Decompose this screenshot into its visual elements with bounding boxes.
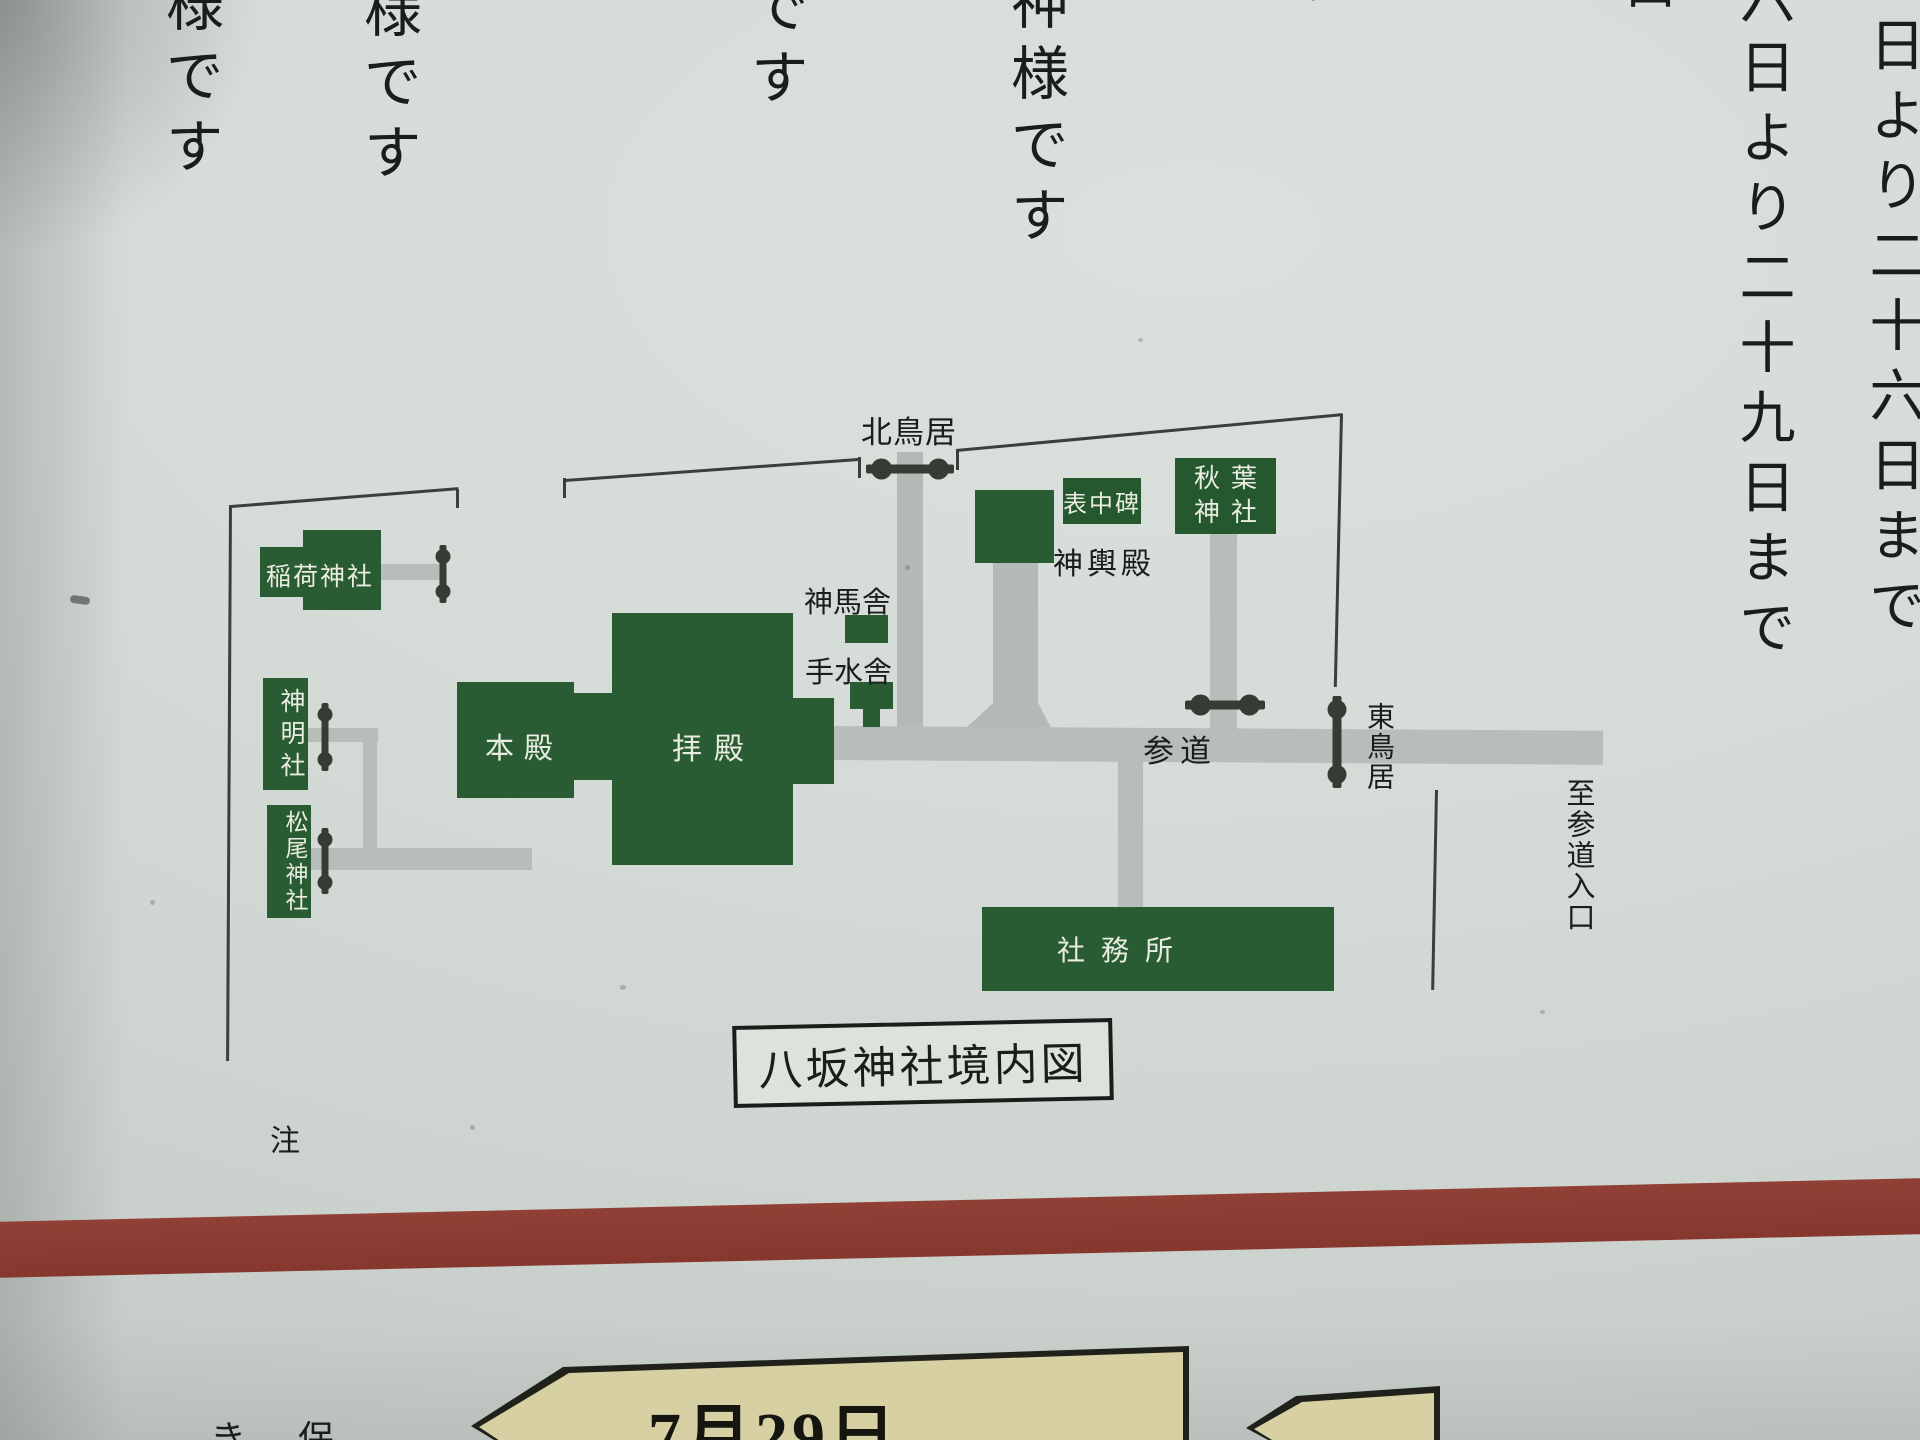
north-torii-icon [866,459,954,479]
vertical-text-column-schedule: 日より二十六日まで [1864,16,1920,646]
path-mikoshiden-flare [966,703,1051,728]
plate-akiba-shrine: 秋葉 神社 [1175,458,1276,534]
label-sando: 参道 [1143,726,1217,771]
vertical-text-column: 神様です [1005,0,1063,256]
second-ribbon-partial [1240,1386,1440,1440]
plate-hyochuhi: 表中碑 [1063,478,1141,524]
label-north-torii: 北鳥居 [861,407,957,452]
shrine-signboard-photo: 様です 様です です 神様です す 口 六日より二十九日まで 日より二十六日まで… [0,0,1920,1440]
date-banner-text: 7月29日 [648,1382,899,1440]
path-matsuo [306,848,532,870]
boundary-line-east [1334,414,1343,687]
path-sando-main [833,726,1603,765]
boundary-tick [956,449,959,470]
label-mikoshiden: 神輿殿 [1053,539,1155,583]
photo-speck [905,565,910,570]
building-haiden-wing [792,698,834,784]
vertical-text-column: 様です [358,0,416,193]
vertical-text-fragment: す [1290,0,1338,17]
building-label-haiden: 拝殿 [672,724,756,768]
building-label-matsuo: 松尾神社 [277,810,311,914]
shinmei-torii-icon [316,703,334,771]
label-chozuya: 手水舎 [805,649,892,691]
path-mikoshiden [993,540,1038,704]
boundary-line-north [565,458,860,482]
boundary-line-southeast [1431,790,1438,990]
photo-speck [470,1125,475,1130]
building-shamusho: 社務所 [982,907,1334,991]
red-divider-bar [0,1178,1920,1278]
building-chozuya-stem [863,709,880,727]
path-west-connector [363,736,377,852]
inari-torii-icon [434,545,452,603]
plate-label-hyochuhi: 表中碑 [1063,484,1141,519]
label-east-torii: 東鳥居 [1358,702,1398,792]
vertical-text-column-schedule: 六日より二十九日まで [1734,0,1790,668]
vertical-text-fragment: 口 [1618,0,1670,23]
partial-text-fragment: 保 [298,1410,334,1440]
second-ribbon-fill [1240,1386,1440,1440]
path-north-torii [897,452,923,728]
boundary-line-west [226,505,232,1061]
building-label-shinmei: 神明社 [272,688,308,784]
path-shamusho [1118,760,1143,908]
boundary-tick [456,489,459,508]
boundary-tick [563,478,566,498]
note-mark: 注 [270,1116,300,1160]
building-label-inari: 稲荷神社 [266,557,374,593]
building-mikoshiden [975,490,1054,563]
akiba-torii-icon [1185,695,1265,715]
plate-label-akiba-line1: 秋葉 [1183,462,1268,496]
photo-speck [620,985,626,990]
photo-speck [1138,338,1143,342]
building-label-honden: 本殿 [485,725,563,767]
map-title-box: 八坂神社境内図 [732,1018,1114,1108]
photo-speck [1540,1010,1545,1014]
map-title: 八坂神社境内図 [758,1028,1088,1099]
vertical-text-column: 様です [160,0,218,187]
boundary-line-northeast [956,413,1343,452]
label-shinmesha: 神馬舎 [804,579,891,621]
building-label-shamusho: 社務所 [1057,929,1259,969]
building-honden-haiden-connector [573,693,613,780]
boundary-tick [858,457,861,478]
photo-speck [150,900,155,905]
east-torii-icon [1327,696,1347,788]
partial-text-fragment: き [210,1410,246,1440]
plate-label-akiba-line2: 神社 [1183,496,1268,530]
photo-mark [70,595,91,606]
matsuo-torii-icon [316,828,334,894]
vertical-text-column: です [745,0,803,118]
label-to-sando-entrance: 至参道入口 [1557,778,1599,933]
boundary-line-northwest [231,487,459,508]
